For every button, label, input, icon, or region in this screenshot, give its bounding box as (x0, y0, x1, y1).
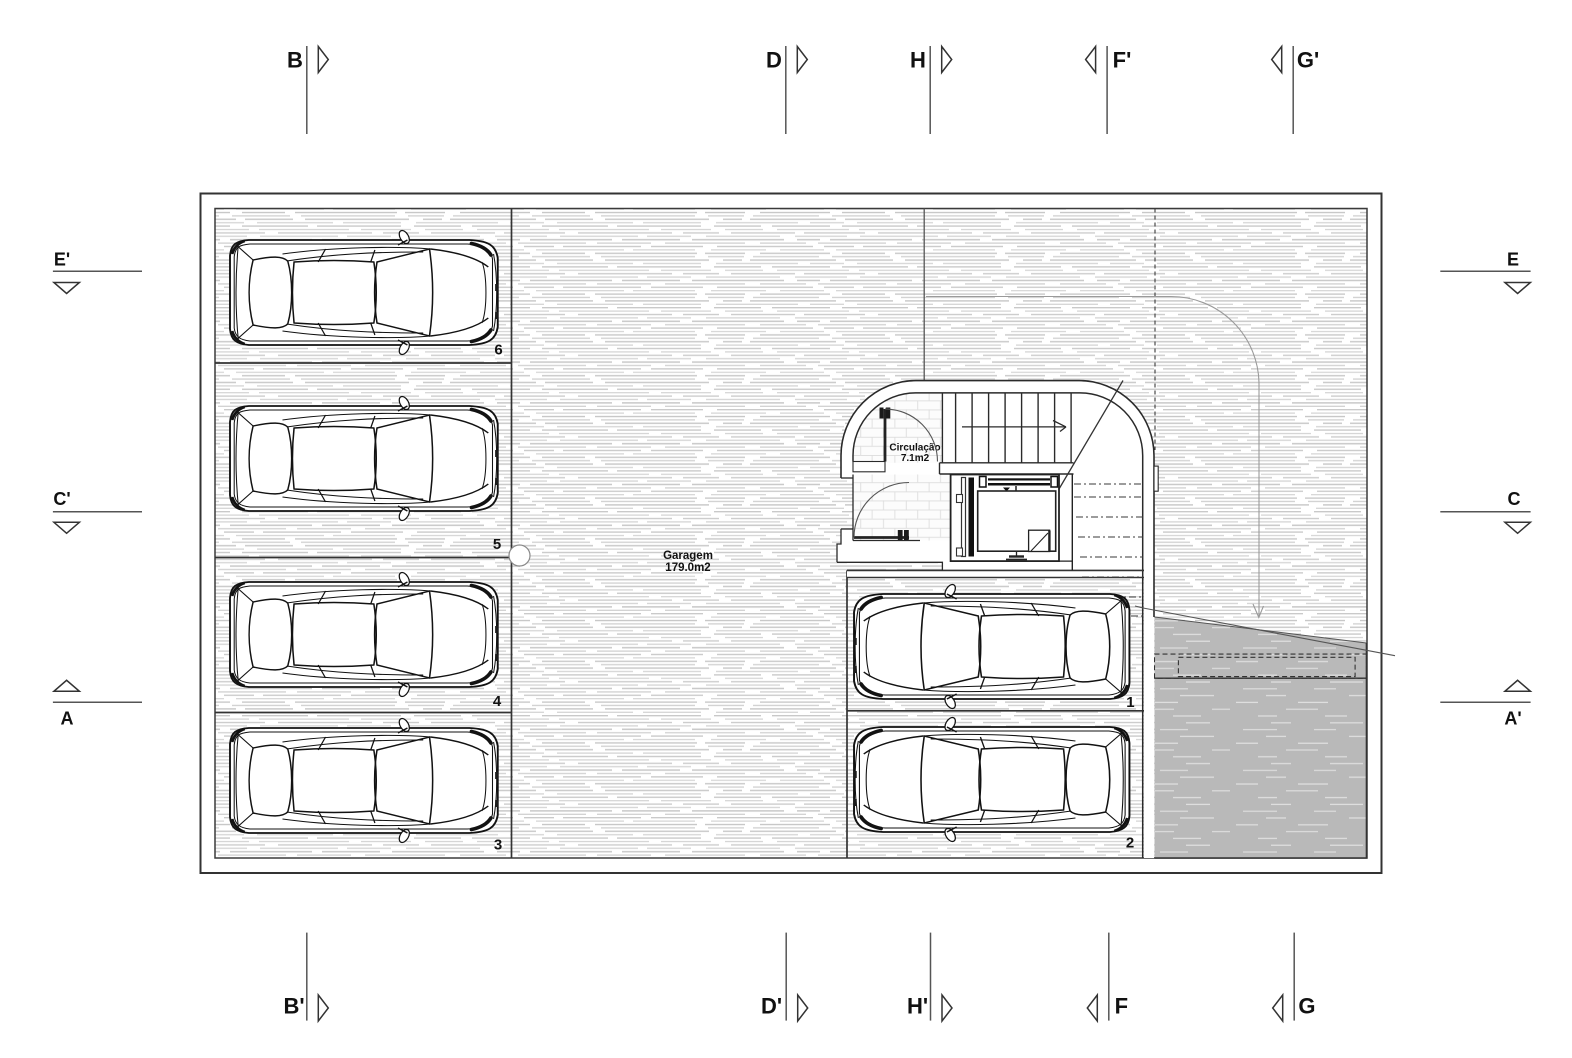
svg-text:G': G' (1297, 48, 1319, 73)
svg-text:Garagem: Garagem (663, 550, 713, 562)
svg-text:2: 2 (1126, 835, 1134, 852)
svg-text:E: E (1507, 250, 1519, 270)
svg-text:H': H' (907, 994, 928, 1019)
svg-text:Circulação: Circulação (889, 443, 940, 454)
svg-text:1: 1 (1126, 694, 1134, 711)
svg-text:A: A (61, 709, 74, 729)
svg-text:3: 3 (494, 837, 502, 854)
svg-text:6: 6 (494, 342, 502, 359)
svg-text:179.0m2: 179.0m2 (665, 562, 710, 574)
svg-text:C: C (1508, 489, 1521, 509)
svg-text:C': C' (53, 489, 70, 509)
svg-text:H: H (910, 48, 926, 73)
svg-text:B': B' (283, 994, 304, 1019)
svg-text:5: 5 (493, 536, 501, 553)
svg-text:F: F (1115, 994, 1128, 1019)
svg-text:B: B (287, 48, 303, 73)
svg-text:G: G (1298, 994, 1315, 1019)
svg-text:7.1m2: 7.1m2 (901, 453, 930, 464)
svg-text:D': D' (761, 994, 782, 1019)
svg-text:4: 4 (493, 693, 502, 710)
svg-text:D: D (766, 48, 782, 73)
svg-text:A': A' (1504, 709, 1521, 729)
svg-text:E': E' (54, 250, 70, 270)
svg-text:F': F' (1113, 48, 1132, 73)
